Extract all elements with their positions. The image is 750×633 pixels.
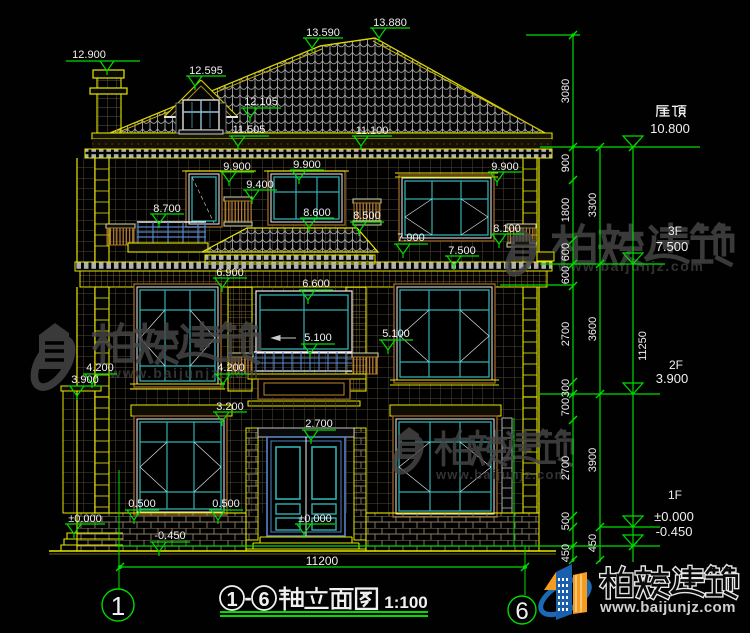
svg-text:2.700: 2.700 — [305, 418, 333, 430]
svg-text:5.100: 5.100 — [304, 332, 332, 344]
svg-text:-0.450: -0.450 — [154, 530, 185, 542]
svg-text:0.500: 0.500 — [212, 498, 240, 510]
svg-text:450: 450 — [560, 544, 572, 562]
svg-text:12.595: 12.595 — [189, 65, 223, 77]
svg-text:9.400: 9.400 — [246, 179, 274, 191]
svg-text:6.600: 6.600 — [302, 278, 330, 290]
svg-text:9.900: 9.900 — [293, 159, 321, 171]
svg-text:8.700: 8.700 — [153, 203, 181, 215]
svg-text:13.880: 13.880 — [373, 17, 407, 29]
svg-text:9.900: 9.900 — [223, 161, 251, 173]
svg-text:8.500: 8.500 — [353, 210, 381, 222]
svg-text:11.505: 11.505 — [233, 124, 266, 136]
svg-text:www.baijunjz.com: www.baijunjz.com — [599, 599, 736, 616]
svg-text:6: 6 — [515, 598, 528, 625]
svg-text:3080: 3080 — [560, 79, 572, 103]
svg-text:12.900: 12.900 — [72, 49, 106, 61]
svg-text:450: 450 — [587, 534, 599, 552]
svg-text:12.105: 12.105 — [244, 96, 278, 108]
svg-text:1800: 1800 — [560, 198, 572, 222]
svg-text:7.500: 7.500 — [448, 245, 476, 257]
svg-text:3300: 3300 — [587, 193, 599, 217]
svg-text:8.100: 8.100 — [493, 223, 521, 235]
svg-text:10.800: 10.800 — [650, 121, 690, 136]
svg-text:-0.450: -0.450 — [656, 524, 693, 539]
svg-text:11250: 11250 — [637, 331, 649, 361]
svg-text:1:100: 1:100 — [384, 593, 427, 612]
svg-text:13.590: 13.590 — [306, 27, 340, 39]
svg-text:3.200: 3.200 — [216, 401, 244, 413]
svg-text:±0.000: ±0.000 — [298, 513, 332, 525]
svg-text:www.baijunjz.com: www.baijunjz.com — [557, 258, 704, 274]
svg-text:2700: 2700 — [560, 322, 572, 346]
svg-text:6.900: 6.900 — [216, 267, 244, 279]
svg-text:9.900: 9.900 — [491, 161, 519, 173]
svg-text:1: 1 — [111, 591, 125, 621]
svg-text:5.100: 5.100 — [382, 328, 410, 340]
svg-text:11200: 11200 — [306, 554, 339, 568]
svg-text:700: 700 — [560, 398, 572, 416]
svg-text:300: 300 — [560, 379, 572, 397]
svg-text:3.900: 3.900 — [71, 374, 99, 386]
svg-text:600: 600 — [560, 243, 572, 261]
svg-text:8.600: 8.600 — [303, 207, 331, 219]
svg-text:0.500: 0.500 — [128, 498, 156, 510]
svg-text:±0.000: ±0.000 — [654, 509, 694, 524]
svg-text:7.500: 7.500 — [656, 239, 689, 254]
svg-text:900: 900 — [560, 154, 572, 172]
svg-text:±0.000: ±0.000 — [68, 513, 102, 525]
svg-text:1F: 1F — [668, 488, 682, 502]
svg-text:500: 500 — [560, 512, 572, 530]
svg-text:1: 1 — [226, 589, 237, 611]
svg-text:3F: 3F — [668, 224, 682, 238]
svg-text:600: 600 — [560, 266, 572, 284]
svg-text:3600: 3600 — [587, 317, 599, 341]
svg-text:www.baijunjz.com: www.baijunjz.com — [435, 467, 567, 482]
svg-text:-: - — [244, 585, 251, 610]
svg-text:11.100: 11.100 — [356, 125, 389, 137]
svg-text:4.200: 4.200 — [86, 362, 114, 374]
svg-text:3900: 3900 — [587, 448, 599, 472]
svg-text:2700: 2700 — [560, 456, 572, 480]
svg-text:6: 6 — [258, 589, 269, 611]
svg-text:2F: 2F — [669, 358, 683, 372]
svg-text:7.900: 7.900 — [397, 232, 425, 244]
svg-text:3.900: 3.900 — [656, 371, 689, 386]
svg-text:4.200: 4.200 — [217, 362, 245, 374]
